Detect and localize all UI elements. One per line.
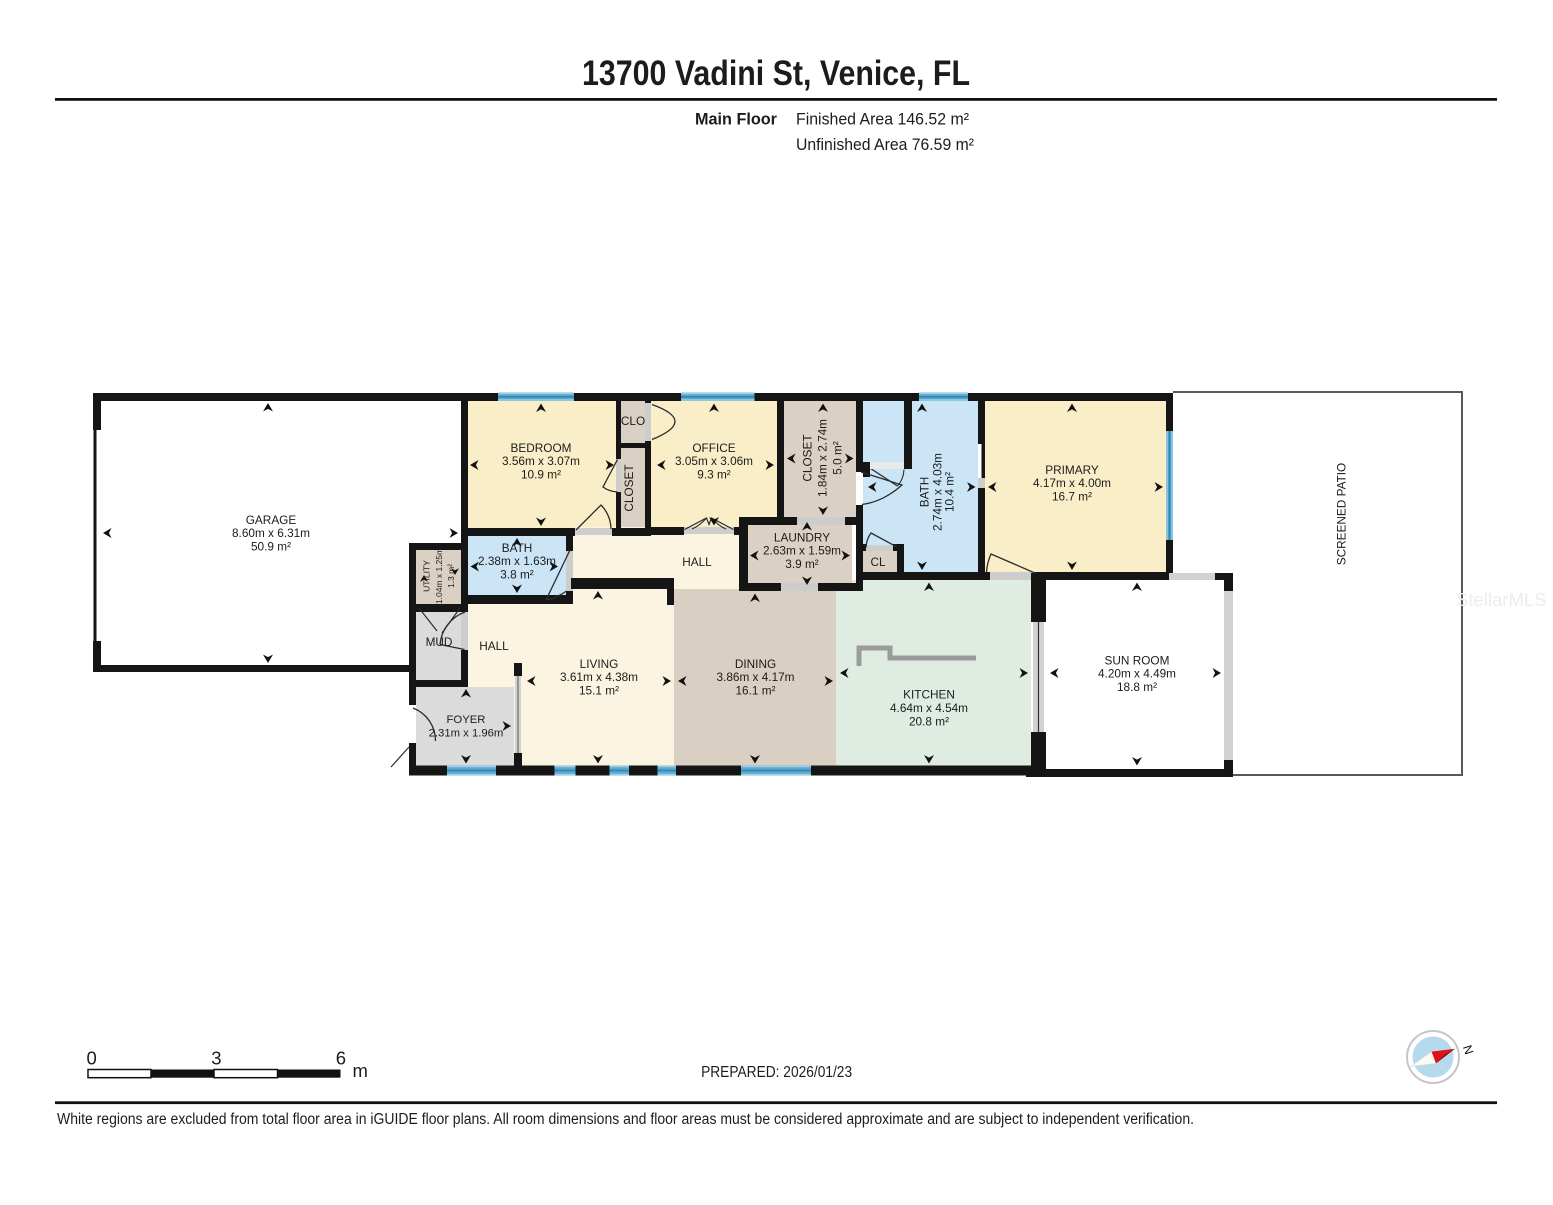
svg-text:BATH: BATH bbox=[918, 477, 932, 508]
svg-text:3.86m x 4.17m: 3.86m x 4.17m bbox=[716, 670, 794, 684]
svg-text:White regions are excluded fro: White regions are excluded from total fl… bbox=[57, 1111, 1194, 1128]
svg-text:50.9 m²: 50.9 m² bbox=[251, 539, 291, 553]
svg-text:PREPARED: 2026/01/23: PREPARED: 2026/01/23 bbox=[701, 1064, 852, 1081]
svg-text:3.56m x 3.07m: 3.56m x 3.07m bbox=[502, 454, 580, 468]
svg-text:3: 3 bbox=[211, 1048, 221, 1069]
svg-text:9.3 m²: 9.3 m² bbox=[697, 467, 731, 481]
svg-text:HALL: HALL bbox=[479, 639, 509, 653]
svg-text:OFFICE: OFFICE bbox=[692, 441, 735, 455]
svg-text:3.05m x 3.06m: 3.05m x 3.06m bbox=[675, 454, 753, 468]
svg-text:SCREENED PATIO: SCREENED PATIO bbox=[1335, 463, 1349, 565]
svg-text:2.63m x 1.59m: 2.63m x 1.59m bbox=[763, 544, 841, 558]
svg-text:m: m bbox=[353, 1060, 368, 1081]
svg-text:5.0 m²: 5.0 m² bbox=[831, 441, 845, 475]
svg-text:HALL: HALL bbox=[682, 555, 712, 569]
svg-text:UTILITY: UTILITY bbox=[422, 560, 432, 592]
svg-text:Main Floor: Main Floor bbox=[695, 110, 777, 129]
svg-text:1.84m x 2.74m: 1.84m x 2.74m bbox=[816, 419, 830, 497]
svg-text:8.60m x 6.31m: 8.60m x 6.31m bbox=[232, 526, 310, 540]
svg-text:FOYER: FOYER bbox=[447, 714, 486, 726]
svg-text:4.20m x 4.49m: 4.20m x 4.49m bbox=[1098, 667, 1176, 681]
svg-text:16.7 m²: 16.7 m² bbox=[1052, 489, 1092, 503]
svg-text:SUN ROOM: SUN ROOM bbox=[1105, 654, 1170, 668]
svg-text:CL: CL bbox=[870, 555, 886, 569]
svg-text:6: 6 bbox=[336, 1048, 346, 1069]
svg-text:LIVING: LIVING bbox=[580, 657, 619, 671]
svg-text:BATH: BATH bbox=[502, 541, 533, 555]
svg-text:2.38m x 1.63m: 2.38m x 1.63m bbox=[478, 554, 556, 568]
svg-text:1.3 m²: 1.3 m² bbox=[446, 564, 456, 588]
svg-text:13700 Vadini St, Venice, FL: 13700 Vadini St, Venice, FL bbox=[582, 54, 970, 93]
svg-text:CLOSET: CLOSET bbox=[801, 434, 815, 481]
svg-text:4.64m x 4.54m: 4.64m x 4.54m bbox=[890, 701, 968, 715]
svg-text:2.31m x 1.96m: 2.31m x 1.96m bbox=[429, 728, 504, 740]
svg-text:MUD: MUD bbox=[426, 635, 453, 649]
svg-text:DINING: DINING bbox=[735, 657, 776, 671]
svg-text:KITCHEN: KITCHEN bbox=[903, 688, 955, 702]
svg-text:GARAGE: GARAGE bbox=[246, 513, 297, 527]
svg-text:0: 0 bbox=[87, 1048, 97, 1069]
svg-text:Finished Area 146.52 m²: Finished Area 146.52 m² bbox=[796, 110, 969, 129]
svg-text:CLOSET: CLOSET bbox=[622, 464, 636, 511]
svg-text:LAUNDRY: LAUNDRY bbox=[774, 531, 830, 545]
svg-text:3.8 m²: 3.8 m² bbox=[500, 567, 534, 581]
svg-text:20.8 m²: 20.8 m² bbox=[909, 715, 949, 729]
svg-text:18.8 m²: 18.8 m² bbox=[1117, 680, 1157, 694]
svg-text:3.61m x 4.38m: 3.61m x 4.38m bbox=[560, 670, 638, 684]
svg-text:15.1 m²: 15.1 m² bbox=[579, 683, 619, 697]
svg-text:Unfinished Area 76.59 m²: Unfinished Area 76.59 m² bbox=[796, 135, 974, 154]
svg-text:StellarMLS: StellarMLS bbox=[1456, 589, 1546, 610]
svg-text:PRIMARY: PRIMARY bbox=[1045, 463, 1099, 477]
svg-text:10.9 m²: 10.9 m² bbox=[521, 467, 561, 481]
svg-text:CLO: CLO bbox=[621, 414, 645, 428]
svg-text:N: N bbox=[1460, 1043, 1476, 1056]
svg-text:3.9 m²: 3.9 m² bbox=[785, 557, 819, 571]
svg-text:10.4 m²: 10.4 m² bbox=[943, 472, 957, 512]
svg-text:16.1 m²: 16.1 m² bbox=[736, 683, 776, 697]
svg-text:BEDROOM: BEDROOM bbox=[511, 441, 572, 455]
svg-text:1.04m x 1.25m: 1.04m x 1.25m bbox=[434, 548, 444, 604]
svg-text:4.17m x 4.00m: 4.17m x 4.00m bbox=[1033, 476, 1111, 490]
